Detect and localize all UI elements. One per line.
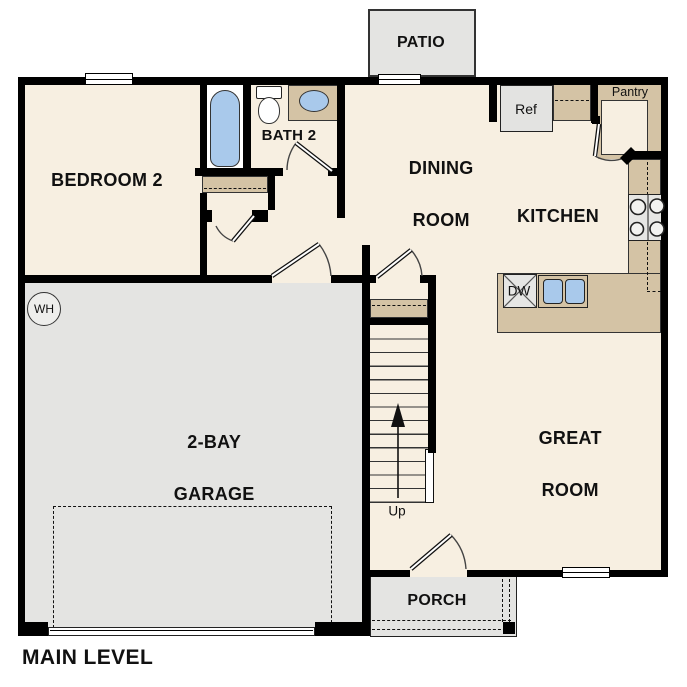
stair-top-edge xyxy=(370,318,428,325)
wall-garage-bottom-left-pier xyxy=(18,622,48,636)
dining-room-label: DINING ROOM xyxy=(366,129,473,233)
wall-left xyxy=(18,77,25,636)
wall-bedroom-right-upper xyxy=(200,84,207,172)
wall-pantry-bottom xyxy=(628,151,668,159)
kitchen-sink-left xyxy=(543,279,563,304)
kitchen-cabinet xyxy=(553,83,591,121)
patio-label: PATIO xyxy=(397,30,445,56)
wall-closet-stub-right xyxy=(252,210,268,222)
stair-closet-shelf xyxy=(370,299,428,318)
porch-dash-v1 xyxy=(502,579,503,622)
plan-title: MAIN LEVEL xyxy=(22,646,153,670)
wall-bedroom-right-lower xyxy=(200,193,207,282)
stove xyxy=(628,194,665,241)
patio-slider-door xyxy=(378,74,421,85)
stair-closet-rod xyxy=(372,305,426,306)
wall-mid-left xyxy=(18,275,272,283)
porch-dash-v2 xyxy=(509,579,510,622)
wall-garage-bottom-right-pier xyxy=(315,622,362,636)
toilet-bowl xyxy=(258,97,280,124)
porch-label: PORCH xyxy=(407,588,466,614)
porch-dash-h2 xyxy=(372,629,511,630)
bath2-label: BATH 2 xyxy=(262,123,317,149)
front-door-opening xyxy=(410,570,467,577)
wall-closet-right xyxy=(268,176,275,210)
bathtub xyxy=(210,90,240,167)
wall-closet-stub-left xyxy=(200,210,212,222)
hall-closet-rod xyxy=(204,188,266,189)
wall-stair-right xyxy=(428,275,436,453)
porch-post xyxy=(503,622,515,634)
cabinet-dash xyxy=(555,100,589,101)
wall-pantry-left xyxy=(591,83,598,123)
porch-dash-h1 xyxy=(372,620,511,621)
refrigerator-label: Ref xyxy=(515,101,537,117)
bedroom2-label: BEDROOM 2 xyxy=(51,167,163,193)
wall-bath-bottom xyxy=(195,168,283,176)
wall-ref-stub xyxy=(489,83,497,122)
stairs-up-label: Up xyxy=(388,504,405,519)
wall-greatroom-bottom xyxy=(362,570,668,577)
wall-bath-right xyxy=(337,84,345,218)
dishwasher-label: DW xyxy=(508,284,531,299)
wall-tubroom-right xyxy=(243,84,251,172)
garage-vehicle-door xyxy=(48,627,315,636)
floor-plan: PATIO Pantry Ref BATH 2 BEDROOM 2 DINING… xyxy=(0,0,687,687)
garage-bay-outline xyxy=(53,506,332,628)
pantry-floor xyxy=(601,100,648,155)
greatroom-window xyxy=(562,567,610,578)
garage-vehicle-door-line xyxy=(50,630,313,631)
bath-sink xyxy=(299,90,329,112)
garage-label: 2-BAY GARAGE xyxy=(131,403,254,507)
water-heater-label: WH xyxy=(34,302,54,316)
stairs xyxy=(370,326,428,503)
great-room-label: GREAT ROOM xyxy=(496,399,602,503)
stair-handrail xyxy=(425,449,434,503)
pantry-label: Pantry xyxy=(612,85,648,99)
kitchen-sink-right xyxy=(565,279,585,304)
counter-dash-corner xyxy=(647,291,661,292)
bedroom-window xyxy=(85,73,133,85)
kitchen-label: KITCHEN xyxy=(517,203,599,229)
hall-closet-shelf xyxy=(202,176,268,193)
wall-garage-right xyxy=(362,245,370,636)
